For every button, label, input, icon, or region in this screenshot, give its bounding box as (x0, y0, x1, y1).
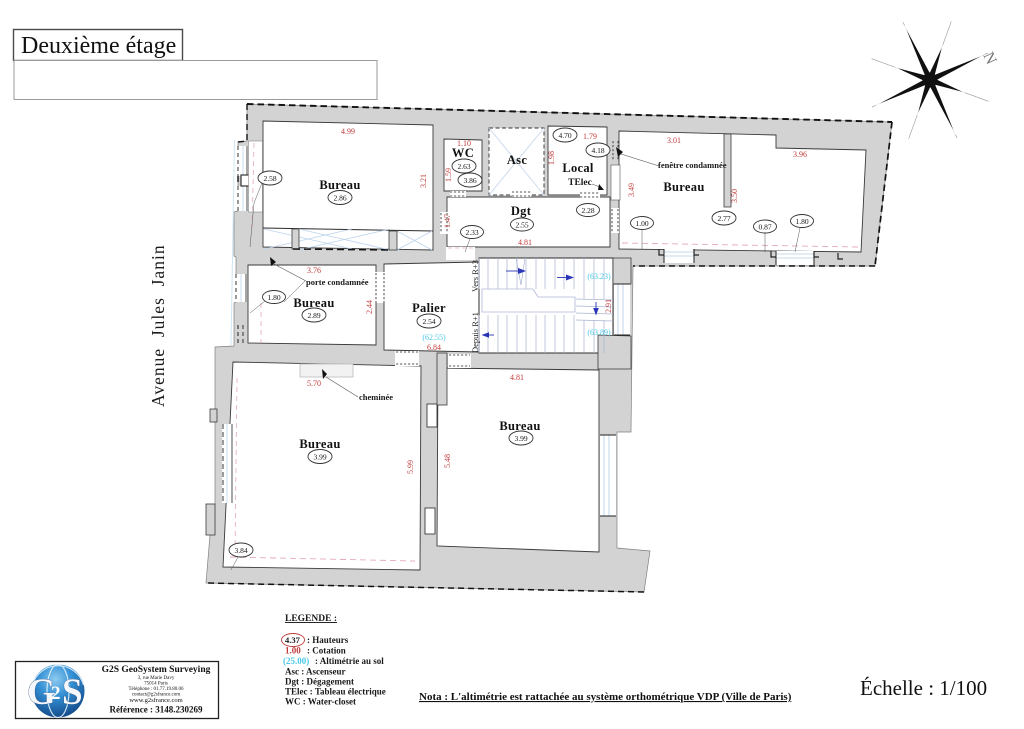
svg-text:4.70: 4.70 (558, 131, 571, 140)
svg-text:Bureau: Bureau (319, 178, 360, 192)
svg-text:fenêtre condamnée: fenêtre condamnée (658, 160, 727, 170)
svg-text:Nota : L'altimétrie est rattac: Nota : L'altimétrie est rattachée au sys… (419, 691, 792, 703)
svg-text:: Cotation: : Cotation (307, 646, 346, 656)
svg-text:2.77: 2.77 (717, 214, 730, 223)
svg-text:2.91: 2.91 (604, 299, 613, 313)
svg-text:Dgt : Dégagement: Dgt : Dégagement (285, 677, 354, 687)
svg-text:2.54: 2.54 (422, 317, 435, 326)
svg-text:2.58: 2.58 (263, 174, 276, 183)
svg-text:4.81: 4.81 (518, 238, 532, 247)
svg-text:2.33: 2.33 (465, 228, 478, 237)
svg-text:Référence : 3148.230269: Référence : 3148.230269 (109, 705, 203, 715)
svg-text:(63.89): (63.89) (587, 328, 611, 337)
svg-text:Dgt: Dgt (511, 204, 532, 218)
svg-text:Local: Local (562, 161, 594, 175)
svg-text:Deuxième étage: Deuxième étage (21, 33, 176, 59)
svg-text:6.84: 6.84 (427, 343, 441, 352)
svg-text:: Hauteurs: : Hauteurs (307, 635, 349, 645)
svg-text:Échelle : 1/100: Échelle : 1/100 (860, 676, 987, 700)
svg-text:4.81: 4.81 (510, 373, 524, 382)
svg-text:(62.55): (62.55) (422, 333, 446, 342)
svg-text:2.89: 2.89 (307, 311, 320, 320)
svg-text:S: S (62, 672, 83, 713)
svg-text:Avenue Jules Janin: Avenue Jules Janin (148, 244, 168, 407)
svg-text:N: N (979, 50, 999, 68)
svg-text:Vers R+3: Vers R+3 (470, 260, 480, 292)
svg-text:1.10: 1.10 (457, 139, 471, 148)
svg-text:4.37: 4.37 (285, 635, 301, 645)
svg-text:2: 2 (51, 683, 61, 704)
svg-text:1.00: 1.00 (635, 219, 648, 228)
svg-text:2.63: 2.63 (457, 162, 470, 171)
svg-text:3.84: 3.84 (234, 546, 247, 555)
svg-text:4.18: 4.18 (591, 146, 604, 155)
svg-text:LEGENDE :: LEGENDE : (285, 614, 337, 624)
svg-text:3.99: 3.99 (313, 453, 326, 462)
svg-text:G2S GeoSystem Surveying: G2S GeoSystem Surveying (102, 665, 211, 675)
svg-text:3, rue Marie Davy: 3, rue Marie Davy (138, 676, 175, 681)
svg-text:Palier: Palier (412, 301, 446, 315)
svg-text:Depuis R+1: Depuis R+1 (470, 312, 480, 353)
svg-text:TElec: TElec (568, 178, 592, 188)
svg-text:3.49: 3.49 (627, 183, 636, 197)
svg-text:1.00: 1.00 (285, 646, 301, 656)
svg-text:cheminée: cheminée (359, 392, 393, 402)
svg-text:3.86: 3.86 (463, 176, 476, 185)
svg-text:3.76: 3.76 (307, 266, 321, 275)
svg-text:3.99: 3.99 (514, 434, 527, 443)
svg-text:1.59: 1.59 (444, 168, 453, 182)
svg-text:5.70: 5.70 (307, 379, 321, 388)
svg-text:Bureau: Bureau (663, 180, 704, 194)
svg-text:Asc: Asc (507, 153, 527, 167)
svg-text:3.01: 3.01 (667, 136, 681, 145)
svg-text:3.21: 3.21 (419, 174, 428, 188)
svg-text:1.79: 1.79 (583, 132, 597, 141)
svg-text:75014 Paris: 75014 Paris (144, 682, 168, 687)
svg-text:3.96: 3.96 (793, 150, 807, 159)
svg-text:2.44: 2.44 (365, 300, 374, 314)
svg-text:(63.23): (63.23) (587, 272, 611, 281)
svg-text:porte condamnée: porte condamnée (306, 277, 369, 287)
svg-text:: Altimétrie au sol: : Altimétrie au sol (315, 656, 384, 666)
svg-text:www.g2sfrance.com: www.g2sfrance.com (129, 697, 182, 704)
svg-text:WC : Water-closet: WC : Water-closet (285, 697, 356, 707)
svg-text:0.87: 0.87 (758, 223, 771, 232)
svg-text:5.99: 5.99 (406, 460, 415, 474)
svg-text:Téléphone : 01.77.19.80.06: Téléphone : 01.77.19.80.06 (129, 687, 184, 692)
svg-text:(25.00): (25.00) (283, 656, 309, 666)
svg-text:1.98: 1.98 (547, 151, 556, 165)
svg-text:3.50: 3.50 (730, 189, 739, 203)
svg-text:1.47: 1.47 (443, 214, 452, 228)
svg-text:Bureau: Bureau (299, 437, 340, 451)
svg-text:2.86: 2.86 (333, 194, 346, 203)
svg-text:2.55: 2.55 (515, 221, 528, 230)
svg-text:1.80: 1.80 (795, 217, 808, 226)
svg-text:1.80: 1.80 (267, 293, 280, 302)
svg-text:Asc : Ascenseur: Asc : Ascenseur (285, 667, 346, 677)
svg-text:4.99: 4.99 (341, 127, 355, 136)
svg-text:TElec : Tableau électrique: TElec : Tableau électrique (285, 687, 386, 697)
svg-text:5.48: 5.48 (443, 454, 452, 468)
svg-text:WC: WC (452, 146, 474, 160)
svg-text:2.28: 2.28 (581, 206, 594, 215)
